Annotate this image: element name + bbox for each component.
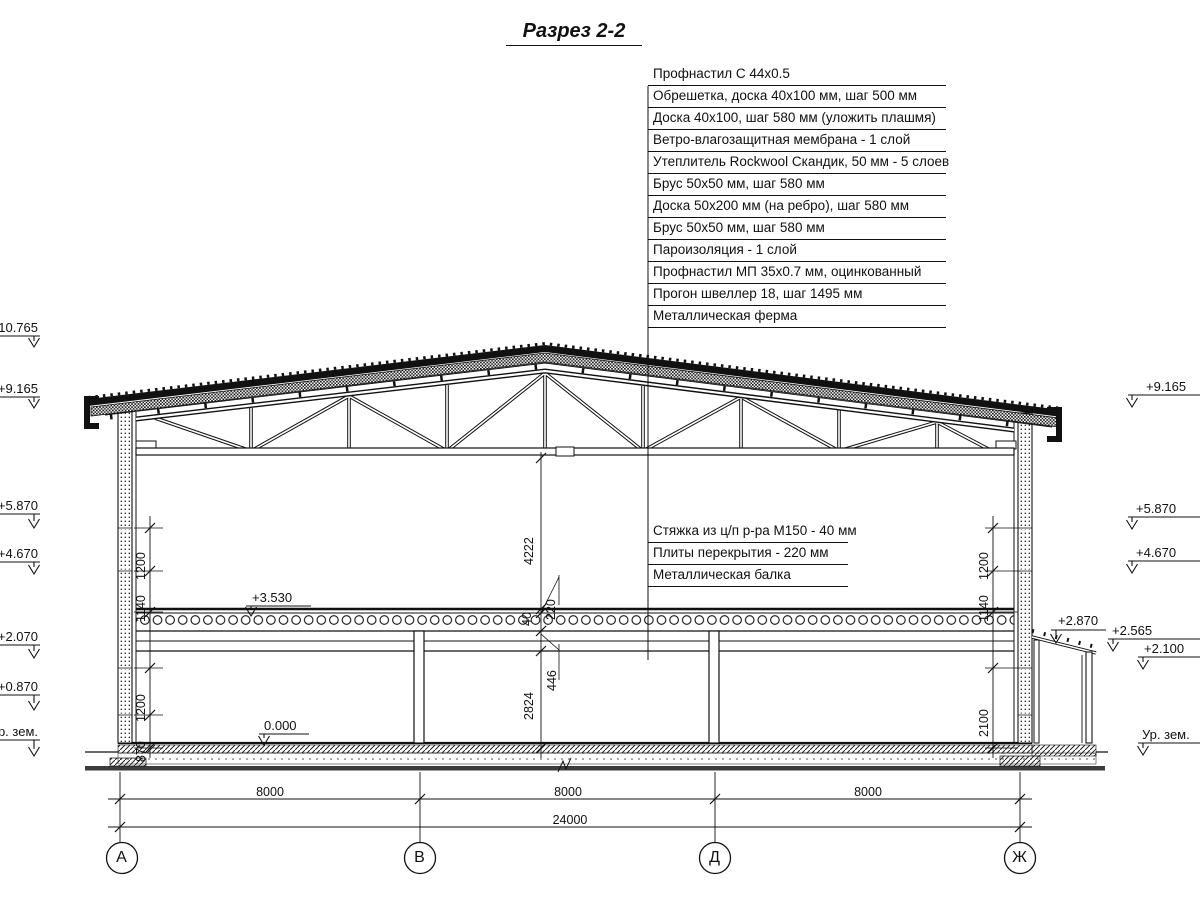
callout-row: Доска 40х100, шаг 580 мм (уложить плашмя… bbox=[648, 108, 946, 130]
elevation-label: +0.870 bbox=[0, 679, 38, 694]
dim-label: 40 bbox=[520, 566, 534, 626]
elevation-label: +5.870 bbox=[1136, 501, 1176, 516]
callout-row: Профнастил С 44х0.5 bbox=[648, 64, 946, 86]
floor-slab bbox=[136, 609, 1014, 651]
elevation-label: +2.565 bbox=[1112, 623, 1152, 638]
callout-row: Прогон швеллер 18, шаг 1495 мм bbox=[648, 284, 946, 306]
callout-row: Ветро-влагозащитная мембрана - 1 слой bbox=[648, 130, 946, 152]
callout-row: Утеплитель Rockwool Скандик, 50 мм - 5 с… bbox=[648, 152, 946, 174]
callout-row: Металлическая балка bbox=[648, 565, 848, 587]
callout-row: Металлическая ферма bbox=[648, 306, 946, 328]
dim-label-span: 8000 bbox=[240, 785, 300, 799]
roof-callout-list: Профнастил С 44х0.5 Обрешетка, доска 40х… bbox=[648, 64, 946, 328]
dim-label: 2824 bbox=[522, 660, 536, 720]
callout-row: Плиты перекрытия - 220 мм bbox=[648, 543, 848, 565]
ground bbox=[85, 743, 1108, 772]
dim-label: 1140 bbox=[134, 562, 148, 622]
elevation-label: +2.870 bbox=[1058, 613, 1098, 628]
drawing-sheet: { "title": "Разрез 2-2", "roof_callouts"… bbox=[0, 0, 1200, 900]
callout-row: Пароизоляция - 1 слой bbox=[648, 240, 946, 262]
callout-row: Стяжка из ц/п р-ра М150 - 40 мм bbox=[648, 521, 848, 543]
dim-label-total: 24000 bbox=[540, 813, 600, 827]
dim-label: 220 bbox=[544, 560, 558, 620]
dim-label-span: 8000 bbox=[538, 785, 598, 799]
elevation-label: +2.100 bbox=[1144, 641, 1184, 656]
callout-row: Профнастил МП 35х0.7 мм, оцинкованный bbox=[648, 262, 946, 284]
interior-columns bbox=[414, 631, 719, 743]
elevation-label: Ур. зем. bbox=[0, 724, 38, 739]
elevation-label: +4.670 bbox=[1136, 545, 1176, 560]
elevation-label: +2.070 bbox=[0, 629, 38, 644]
elevation-label-floor-zero: 0.000 bbox=[264, 718, 297, 733]
callout-row: Брус 50х50 мм, шаг 580 мм bbox=[648, 218, 946, 240]
elevation-label: +9.165 bbox=[1146, 379, 1186, 394]
callout-row: Доска 50х200 мм (на ребро), шаг 580 мм bbox=[648, 196, 946, 218]
dim-label: 1140 bbox=[977, 562, 991, 622]
right-wall bbox=[996, 413, 1032, 743]
elevation-label: +10.765 bbox=[0, 320, 38, 335]
floor-callout-list: Стяжка из ц/п р-ра М150 - 40 мм Плиты пе… bbox=[648, 521, 848, 587]
callout-row: Брус 50х50 мм, шаг 580 мм bbox=[648, 174, 946, 196]
annex bbox=[1032, 631, 1096, 743]
dim-label: 4222 bbox=[522, 505, 536, 565]
axis-label: Ж bbox=[1004, 849, 1035, 867]
dim-label: 870 bbox=[134, 702, 148, 762]
drawing-title: Разрез 2-2 bbox=[506, 20, 642, 46]
elevation-label: +4.670 bbox=[0, 546, 38, 561]
axis-label: Д bbox=[699, 849, 730, 867]
elevation-label-slab-top: +3.530 bbox=[252, 590, 292, 605]
axis-label: В bbox=[404, 849, 435, 867]
dim-label: 446 bbox=[545, 631, 559, 691]
elevation-label: Ур. зем. bbox=[1142, 727, 1190, 742]
section-linework bbox=[0, 0, 1200, 900]
dim-label: 2100 bbox=[977, 677, 991, 737]
callout-row: Обрешетка, доска 40х100 мм, шаг 500 мм bbox=[648, 86, 946, 108]
axis-bubbles bbox=[107, 843, 1036, 874]
axis-label: А bbox=[106, 849, 137, 867]
elevation-label: +9.165 bbox=[0, 381, 38, 396]
dim-label-span: 8000 bbox=[838, 785, 898, 799]
dimension-lines bbox=[107, 452, 1036, 874]
elevation-label: +5.870 bbox=[0, 498, 38, 513]
